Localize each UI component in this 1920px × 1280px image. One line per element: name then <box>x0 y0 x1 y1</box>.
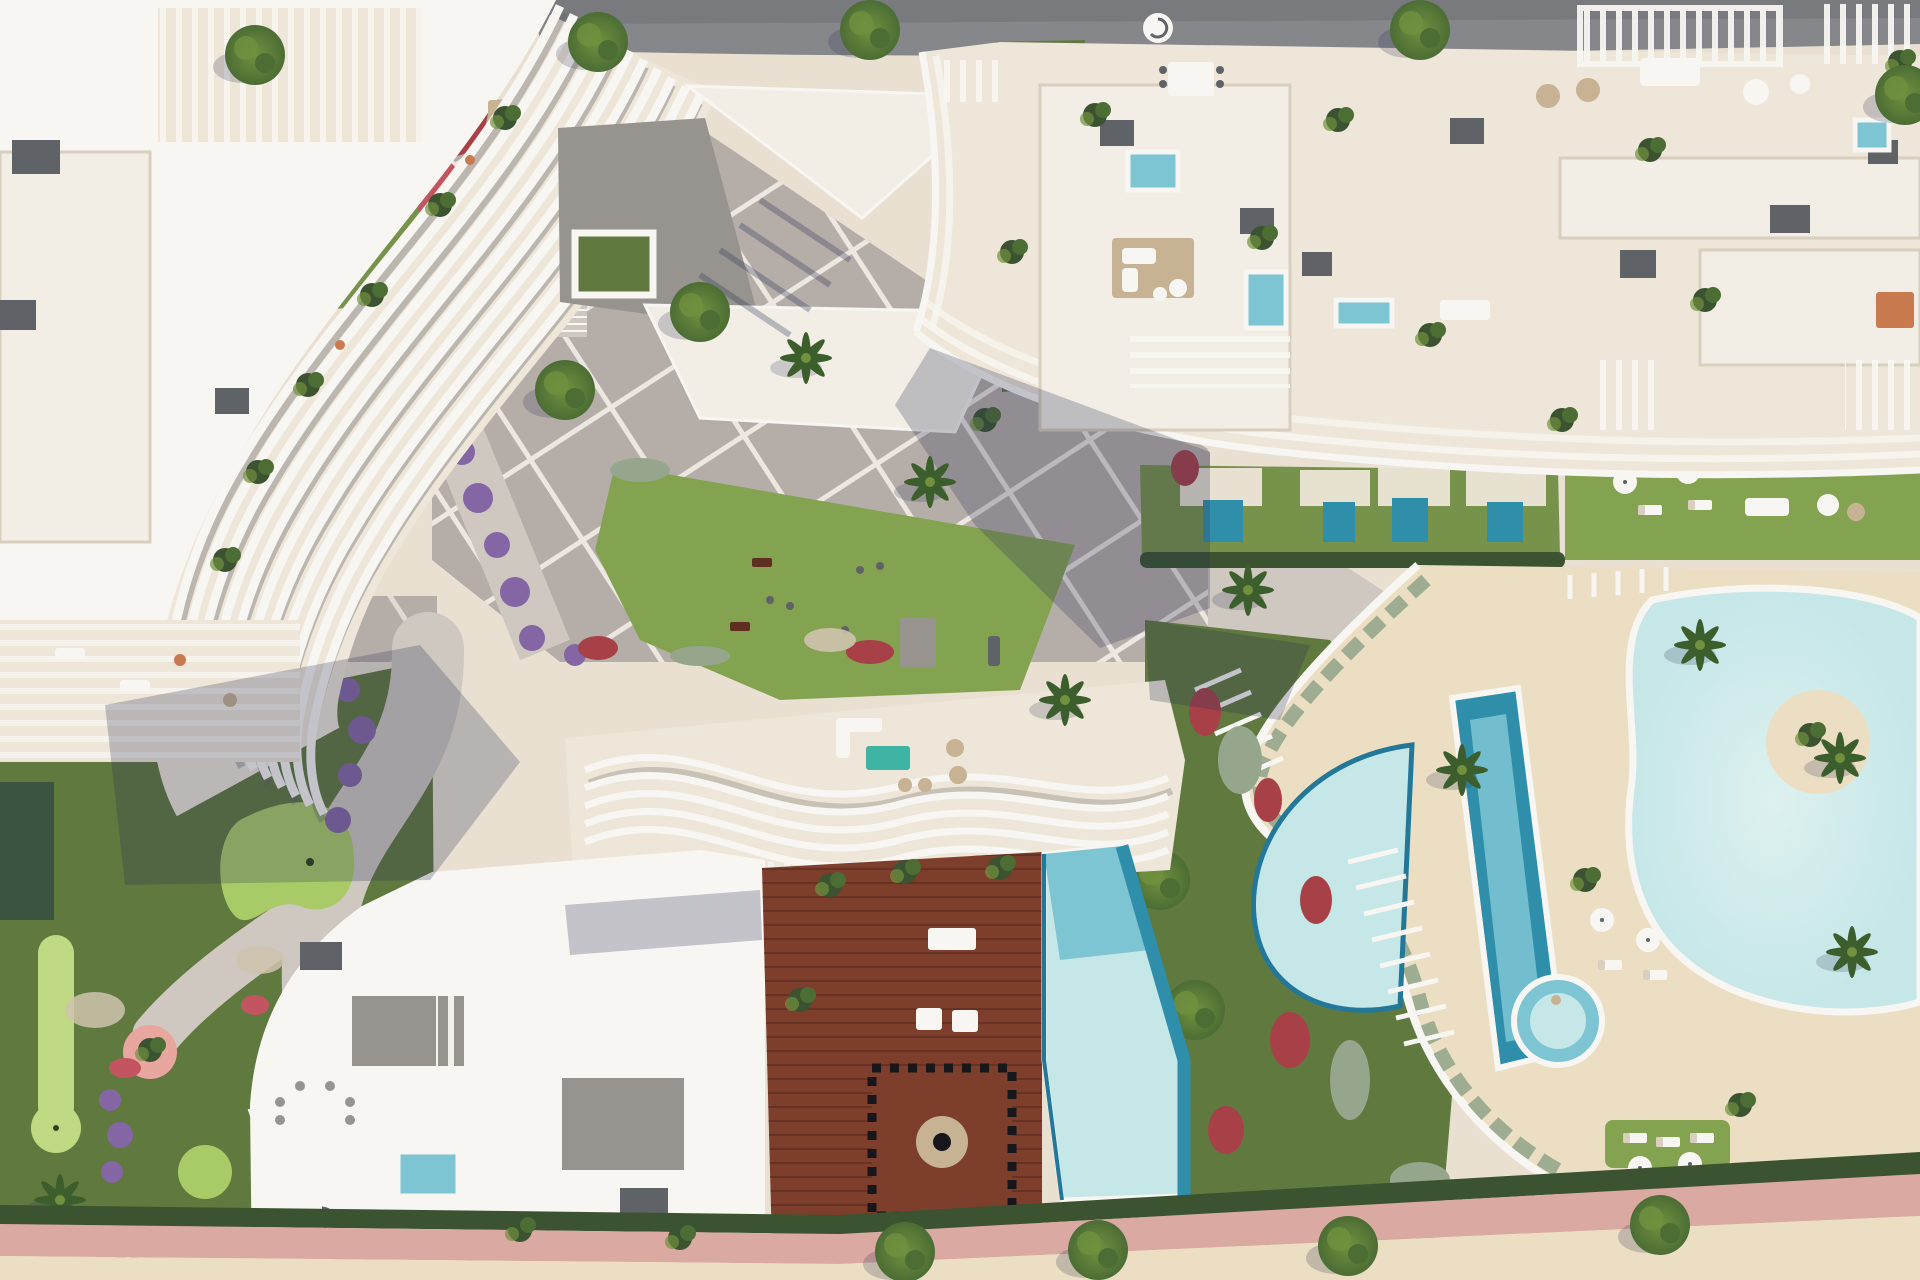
dark-pond <box>0 782 54 920</box>
pavilion-planter <box>575 233 653 295</box>
aerial-render <box>0 0 1920 1280</box>
putting-lane <box>38 935 74 1125</box>
roof-dining <box>286 1092 344 1136</box>
roof-plunge-pool <box>398 1152 458 1196</box>
putting-circle <box>178 1145 232 1199</box>
